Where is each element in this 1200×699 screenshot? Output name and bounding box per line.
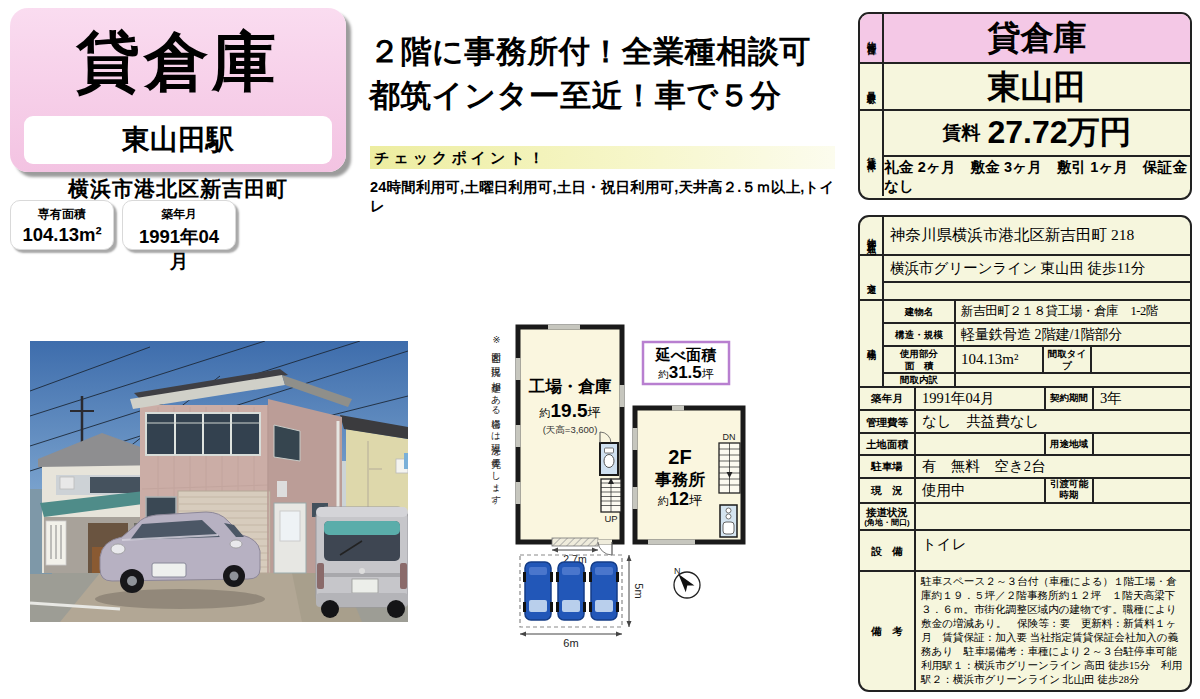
- summary-type-label: 物件種目: [860, 14, 884, 62]
- room1-area-prefix: 約: [539, 407, 551, 419]
- floorplan-2f: 2F 事務所 約12坪 DN: [635, 408, 743, 542]
- building-label: 建物: [860, 301, 884, 385]
- row-transport: 交通 横浜市グリーンライン 東山田 徒歩11分: [860, 256, 1190, 301]
- location-value: 神奈川県横浜市港北区新吉田町 218: [884, 217, 1190, 254]
- summary-row-station: 最寄駅 東山田: [860, 64, 1190, 111]
- row-status: 現 況 使用中 引渡可能 時期: [860, 479, 1190, 504]
- room1-ceiling-height: (天高=3,600): [543, 424, 598, 435]
- row-location: 物件所在地 神奈川県横浜市港北区新吉田町 218: [860, 217, 1190, 256]
- row-parking: 駐車場 有 無料 空き2台: [860, 456, 1190, 479]
- room2-area-prefix: 約: [657, 495, 669, 507]
- stat-built-label: 築年月: [130, 206, 228, 223]
- property-address: 横浜市港北区新吉田町: [4, 175, 352, 203]
- summary-type-value: 貸倉庫: [884, 14, 1190, 62]
- row-fees: 管理費等 なし 共益費なし: [860, 411, 1190, 434]
- transport-label: 交通: [860, 256, 884, 299]
- total-area-unit: 坪: [702, 367, 714, 381]
- land-value: [916, 434, 1046, 454]
- fees-label: 管理費等: [860, 411, 916, 432]
- room1-name: 工場・倉庫: [528, 377, 612, 395]
- used-area-label-line2: 面 積: [905, 360, 934, 371]
- parking-label: 駐車場: [860, 456, 916, 477]
- checkpoint-items: 24時間利用可,土曜日利用可,土日・祝日利用可,天井高２.５ｍ以上,トイレ: [370, 178, 840, 216]
- equipment-value: トイレ: [916, 531, 1190, 570]
- total-area-box: 延べ面積 約31.5坪: [643, 342, 729, 384]
- parking-car: [523, 562, 553, 620]
- road-label-line1: 接道状況: [866, 506, 908, 518]
- station-name-box: 東山田駅: [24, 116, 332, 164]
- room2-floor: 2F: [668, 446, 691, 468]
- row-equipment: 設 備 トイレ: [860, 531, 1190, 572]
- total-area-prefix: 約: [658, 368, 669, 380]
- remarks-value: 駐車スペース２～３台付（車種による）１階工場・倉庫約１９．５坪／２階事務所約１２…: [916, 572, 1190, 690]
- total-area-label: 延べ面積: [654, 346, 716, 363]
- parking-area: [520, 555, 622, 627]
- terms-value: 礼金 2ヶ月 敷金 3ヶ月 敷引 1ヶ月 保証金 なし: [884, 157, 1190, 196]
- stat-card-built: 築年月 1991年04月: [122, 200, 236, 250]
- status-value: 使用中: [916, 479, 1046, 502]
- used-area-value: 104.13m²: [956, 347, 1044, 372]
- headline: ２階に事務所付！全業種相談可 都筑インター至近！車で５分: [369, 30, 839, 118]
- stat-built-value: 1991年04月: [130, 224, 228, 274]
- built-label: 築年月: [860, 388, 916, 409]
- room2-area-unit: 坪: [688, 493, 702, 508]
- row-building: 建物 建物名 新吉田町２１８貸工場・倉庫 1-2階 構造・規模 軽量鉄骨造 2階…: [860, 301, 1190, 387]
- detail-table: 物件所在地 神奈川県横浜市港北区新吉田町 218 交通 横浜市グリーンライン 東…: [858, 215, 1192, 692]
- road-label: 接道状況 (角地・間口): [860, 504, 916, 529]
- handover-value: [1094, 479, 1190, 502]
- property-title-card: 貸倉庫 東山田駅: [10, 8, 346, 172]
- stairs-up-label: UP: [604, 513, 617, 524]
- parking-value: 有 無料 空き2台: [916, 456, 1190, 477]
- room2-area: 12: [669, 489, 689, 509]
- zoning-label: 用途地域: [1046, 434, 1094, 454]
- remarks-label: 備 考: [860, 572, 916, 690]
- summary-row-type: 物件種目 貸倉庫: [860, 14, 1190, 64]
- contract-value: 3年: [1094, 388, 1190, 409]
- road-value: [916, 504, 1190, 529]
- room1-area-unit: 坪: [586, 405, 600, 420]
- handover-label-line2: 時期: [1060, 490, 1079, 501]
- road-label-line2: (角地・間口): [864, 518, 909, 527]
- equipment-label: 設 備: [860, 531, 916, 570]
- stat-area-value: 104.13m²: [18, 224, 106, 246]
- zoning-value: [1094, 434, 1190, 454]
- location-label: 物件所在地: [860, 217, 884, 254]
- checkpoint-header: チェックポイント！: [370, 146, 835, 169]
- used-area-label: 使用部分 面 積: [884, 347, 956, 372]
- row-built: 築年月 1991年04月 契約期間 3年: [860, 388, 1190, 411]
- madori-label: 間取内訳: [884, 374, 956, 385]
- headline-line2: 都筑インター至近！車で５分: [369, 74, 839, 118]
- floorplan-diagram: 工場・倉庫 約19.5坪 (天高=3,600) UP: [500, 322, 770, 652]
- transport-value: 横浜市グリーンライン 東山田 徒歩11分: [884, 256, 1190, 283]
- photo-car-minivan: [316, 507, 408, 618]
- land-label: 土地面積: [860, 434, 916, 454]
- structure-label: 構造・規模: [884, 324, 956, 345]
- madori-type-label: 間取タイプ: [1044, 347, 1092, 372]
- shutter-opening: [552, 538, 598, 546]
- transport-value-2: [884, 283, 1190, 299]
- madori-type-value: [1092, 347, 1190, 372]
- headline-line1: ２階に事務所付！全業種相談可: [369, 30, 839, 74]
- stat-card-area: 専有面積 104.13m²: [10, 200, 114, 250]
- total-area-value: 31.5: [669, 363, 702, 382]
- summary-row-terms: 賃貸条件 賃料 27.72万円 礼金 2ヶ月 敷金 3ヶ月 敷引 1ヶ月 保証金…: [860, 111, 1190, 196]
- property-photo: [30, 341, 408, 622]
- row-land: 土地面積 用途地域: [860, 434, 1190, 456]
- summary-table: 物件種目 貸倉庫 最寄駅 東山田 賃貸条件 賃料 27.72万円 礼金 2ヶ月 …: [858, 12, 1192, 200]
- compass-north-label: N: [674, 566, 681, 576]
- rent-label: 賃料: [942, 120, 980, 146]
- summary-terms-label: 賃貸条件: [860, 111, 884, 196]
- status-label: 現 況: [860, 479, 916, 502]
- dim-site-width-label: 6m: [563, 637, 578, 649]
- summary-station-label: 最寄駅: [860, 64, 884, 109]
- contract-label: 契約期間: [1046, 388, 1094, 409]
- summary-station-value: 東山田: [884, 64, 1190, 109]
- building-name-value: 新吉田町２１８貸工場・倉庫 1-2階: [956, 301, 1190, 322]
- floorplan-1f: 工場・倉庫 約19.5坪 (天高=3,600) UP: [518, 327, 622, 555]
- row-road: 接道状況 (角地・間口): [860, 504, 1190, 531]
- rent-value: 27.72万円: [987, 111, 1131, 155]
- stat-area-label: 専有面積: [18, 206, 106, 223]
- parking-car: [556, 562, 586, 620]
- stairs-down-label: DN: [723, 432, 736, 442]
- fees-value: なし 共益費なし: [916, 411, 1190, 432]
- parking-car: [589, 562, 619, 620]
- dim-site-depth-label: 5m: [633, 583, 645, 598]
- handover-label: 引渡可能 時期: [1046, 479, 1094, 502]
- room2-name: 事務所: [654, 470, 705, 488]
- row-remarks: 備 考 駐車スペース２～３台付（車種による）１階工場・倉庫約１９．５坪／２階事務…: [860, 572, 1190, 690]
- property-type-title: 貸倉庫: [10, 12, 346, 112]
- room1-area: 19.5: [551, 400, 588, 421]
- kitchen-unit: [720, 505, 737, 537]
- structure-value: 軽量鉄骨造 2階建/1階部分: [956, 324, 1190, 345]
- compass-north-icon: N: [674, 566, 700, 598]
- madori-value: [956, 374, 1190, 385]
- building-name-label: 建物名: [884, 301, 956, 322]
- used-area-label-line1: 使用部分: [900, 348, 938, 359]
- built-value: 1991年04月: [916, 388, 1046, 409]
